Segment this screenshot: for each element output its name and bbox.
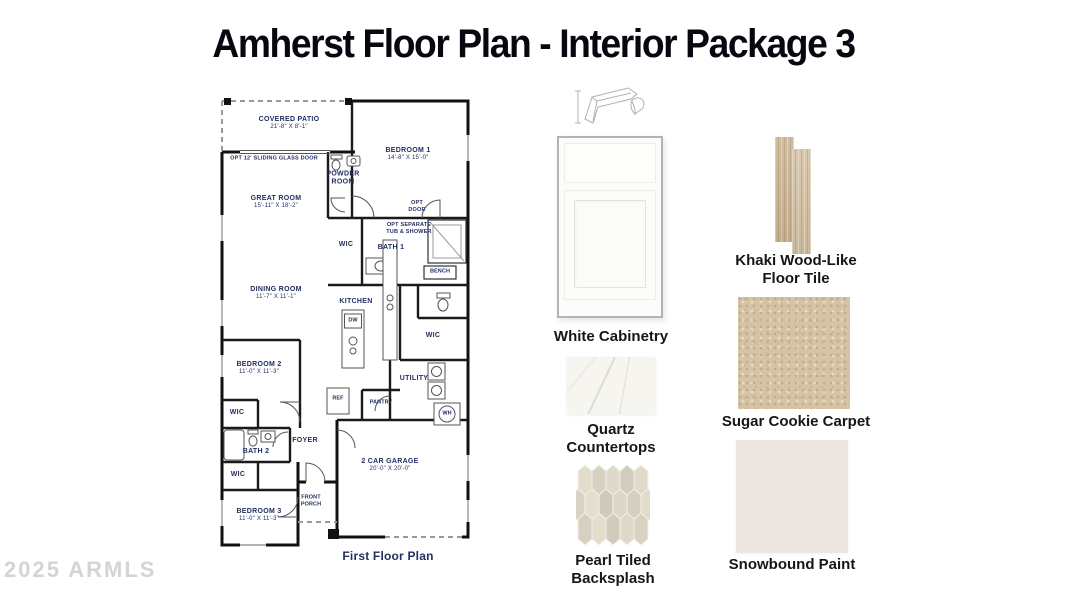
room-label-bath-2: BATH 2 xyxy=(243,448,270,456)
room-label-powder-room: POWDER ROOM xyxy=(325,171,361,188)
pearl-tiled-backsplash-swatch xyxy=(576,464,650,548)
snowbound-paint-swatch xyxy=(736,440,848,553)
sample-label-khaki-wood-tile: Khaki Wood-Like Floor Tile xyxy=(721,252,871,288)
khaki-wood-tile-swatch xyxy=(775,137,813,255)
sample-label-snowbound-paint: Snowbound Paint xyxy=(692,556,892,574)
room-label-wic-bedroom3: WIC xyxy=(231,471,246,479)
room-label-wic-bedroom1: WIC xyxy=(426,332,441,340)
room-label-wic-bedroom2: WIC xyxy=(230,409,245,417)
room-label-kitchen: KITCHEN xyxy=(339,298,372,306)
room-label-covered-patio: COVERED PATIO 21'-8" X 8'-1" xyxy=(259,116,320,132)
powder-fixtures xyxy=(331,155,360,170)
room-label-foyer: FOYER xyxy=(292,437,318,445)
annotation-sliding-glass-door: OPT 12' SLIDING GLASS DOOR xyxy=(230,156,318,163)
floor-plan-drawing xyxy=(0,0,1067,600)
sliding-door xyxy=(240,151,330,154)
armls-watermark: 2025 ARMLS xyxy=(4,557,156,583)
cabinet-drawer-front xyxy=(564,143,656,183)
room-label-dw: DW xyxy=(348,318,357,325)
annotation-opt-tub-shower: OPT SEPARATE TUB & SHOWER xyxy=(383,222,435,236)
room-label-ref: REF xyxy=(332,396,343,403)
room-label-wic-bath1: WIC xyxy=(339,241,354,249)
sample-label-quartz-countertops: Quartz Countertops xyxy=(546,421,676,457)
room-label-bedroom-1: BEDROOM 1 14'-8" X 15'-0" xyxy=(385,147,430,163)
wood-plank xyxy=(792,149,811,254)
sample-label-pearl-tiled-backsplash: Pearl Tiled Backsplash xyxy=(553,552,673,588)
annotation-opt-door: OPT DOOR xyxy=(404,200,430,214)
sample-label-sugar-cookie-carpet: Sugar Cookie Carpet xyxy=(696,413,896,431)
room-label-bedroom-2: BEDROOM 2 11'-0" X 11'-3" xyxy=(236,361,281,377)
sample-label-white-cabinetry: White Cabinetry xyxy=(521,328,701,346)
room-label-bath-1: BATH 1 xyxy=(373,244,409,252)
sugar-cookie-carpet-swatch xyxy=(738,297,850,409)
room-label-bench: BENCH xyxy=(430,269,450,276)
cabinet-door-panel xyxy=(574,200,646,288)
room-label-wh: WH xyxy=(442,411,451,418)
room-label-dining-room: DINING ROOM 11'-7" X 11'-1" xyxy=(250,286,302,302)
white-cabinetry-swatch xyxy=(557,136,663,318)
room-label-front-porch: FRONT PORCH xyxy=(293,494,329,507)
room-label-utility: UTILITY xyxy=(400,375,429,383)
room-label-great-room: GREAT ROOM 15'-11" X 18'-2" xyxy=(251,195,302,211)
listing-image: Amherst Floor Plan - Interior Package 3 xyxy=(0,0,1067,600)
floor-plan-caption: First Floor Plan xyxy=(342,549,433,563)
room-label-pantry: PANTRY xyxy=(370,400,393,407)
cabinet-crown-molding-icon xyxy=(570,83,650,133)
cabinet-door xyxy=(564,190,656,300)
room-label-bedroom-3: BEDROOM 3 11'-0" X 11'-3" xyxy=(236,508,281,524)
quartz-countertops-swatch xyxy=(567,357,656,414)
room-label-garage: 2 CAR GARAGE 20'-0" X 20'-0" xyxy=(361,458,418,474)
